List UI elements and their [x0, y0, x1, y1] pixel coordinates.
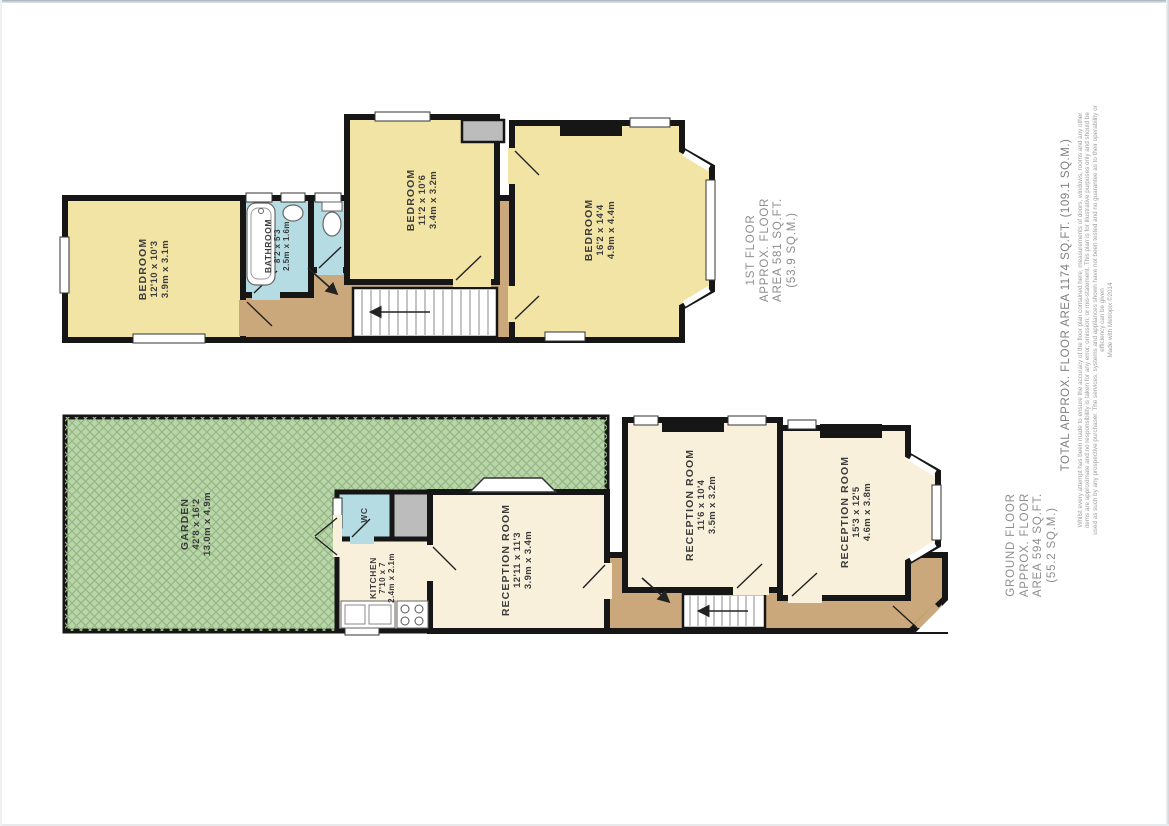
stairs-first-floor — [353, 288, 497, 337]
room-bedroom-1 — [65, 198, 243, 340]
window-icon — [728, 416, 766, 425]
room-reception-2 — [625, 420, 780, 590]
chimney-breast-bedroom-3 — [560, 120, 622, 136]
ground-floor-area-caption: GROUND FLOOR APPROX. FLOOR AREA 594 SQ.F… — [1003, 435, 1061, 655]
sink-icon — [283, 205, 303, 221]
room-bedroom-3 — [512, 123, 712, 340]
window-icon — [375, 112, 430, 121]
ground-floor-plan — [65, 416, 948, 635]
window-icon — [60, 237, 69, 293]
chimney-breast-reception-2 — [662, 417, 724, 432]
first-floor-area-caption: 1ST FLOOR APPROX. FLOOR AREA 581 SQ.FT. … — [743, 150, 801, 350]
floorplan-page: BEDROOM 12'10 x 10'3 3.9m x 3.1m BATHROO… — [0, 0, 1169, 826]
void-block-ground — [392, 492, 430, 539]
room-reception-1 — [430, 492, 607, 631]
window-icon — [788, 420, 816, 429]
first-floor-plan — [60, 112, 715, 343]
stairs-ground-floor — [683, 594, 765, 628]
toilet-cistern-icon — [322, 202, 342, 211]
roof-void-block-first — [462, 120, 504, 142]
disclaimer-text: Whilst every attempt has been made to en… — [1077, 105, 1117, 535]
floorplan-drawing — [0, 0, 1169, 826]
metropix-credit: Made with Metropix ©2014 — [1107, 105, 1114, 535]
total-area-caption: TOTAL APPROX. FLOOR AREA 1174 SQ.FT. (10… — [1060, 90, 1074, 520]
window-icon — [281, 193, 305, 202]
bay-window-icon — [932, 485, 941, 540]
window-icon — [246, 193, 272, 202]
window-icon — [634, 416, 658, 425]
bay-window-garden — [470, 478, 556, 492]
window-icon — [133, 334, 205, 343]
chimney-breast-reception-3 — [820, 424, 882, 438]
kitchen-units-icon — [341, 601, 428, 628]
window-icon — [630, 118, 670, 127]
room-wc-ground — [337, 492, 392, 539]
window-icon — [545, 332, 585, 341]
bay-window-icon — [706, 180, 715, 280]
window-icon — [315, 193, 341, 202]
toilet-icon — [323, 212, 341, 236]
